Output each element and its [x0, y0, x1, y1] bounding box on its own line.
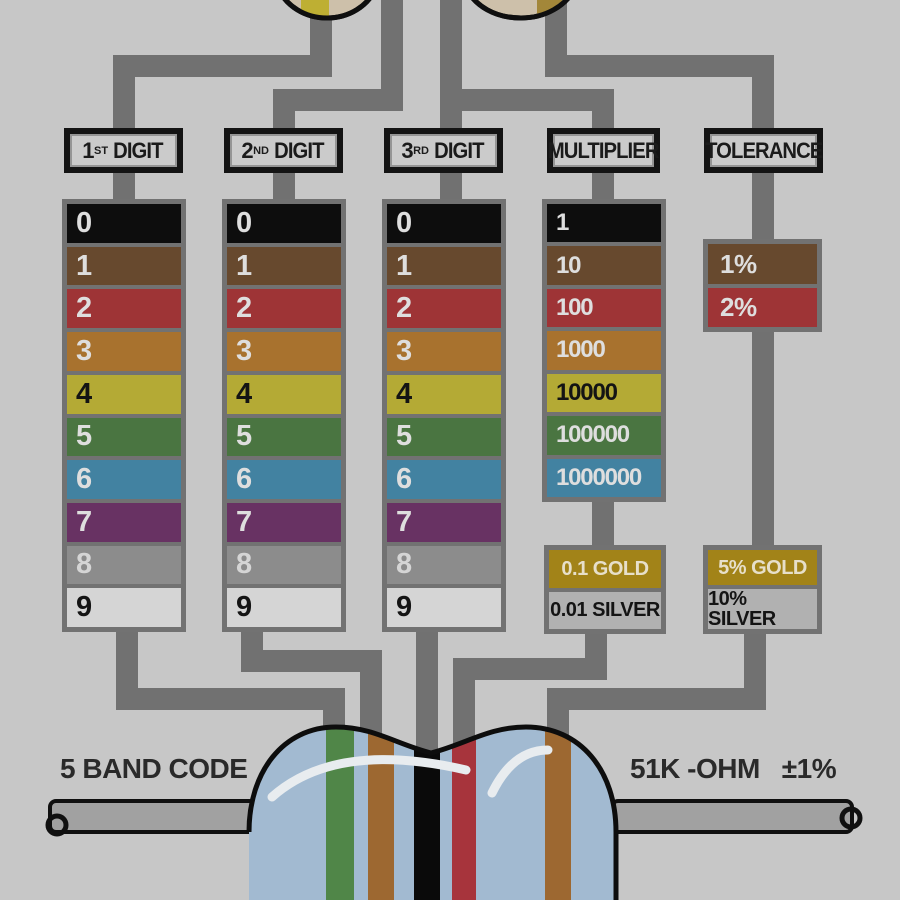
green-row: 5: [227, 418, 341, 457]
gold-row: 5% GOLD: [708, 550, 817, 585]
orange-row: 3: [387, 332, 501, 371]
row-label: 3: [67, 337, 92, 366]
white-row: 9: [227, 588, 341, 627]
header-word: DIGIT: [434, 138, 483, 164]
red-row: 2%: [708, 288, 817, 328]
row-label: 2: [67, 294, 92, 323]
violet-row: 7: [67, 503, 181, 542]
caption-text: 5 BAND CODE: [60, 753, 247, 784]
gray-row: 8: [227, 546, 341, 585]
row-label: 8: [387, 550, 412, 579]
row-label: 1: [547, 211, 568, 235]
header-word: DIGIT: [113, 138, 162, 164]
row-label: 7: [67, 508, 92, 537]
row-label: 9: [387, 593, 412, 622]
row-label: 0: [67, 209, 92, 238]
gray-row: 8: [387, 546, 501, 585]
row-label: 10: [547, 254, 580, 278]
header-3rd-digit: 3RDDIGIT: [384, 128, 503, 173]
white-row: 9: [387, 588, 501, 627]
row-label: 7: [227, 508, 252, 537]
header-number: 3: [401, 138, 413, 164]
black-row: 0: [387, 204, 501, 243]
resistor-value-label: 51K -OHM±1%: [630, 753, 836, 785]
tolerance-table: 1%2%: [703, 239, 822, 332]
tolerance-gold-silver-box: 5% GOLD10% SILVER: [703, 545, 822, 634]
header-ordinal-suffix: ND: [253, 145, 269, 157]
tolerance-value: ±1%: [782, 753, 836, 784]
row-label: 3: [227, 337, 252, 366]
brown-row: 1: [227, 247, 341, 286]
row-label: 9: [227, 593, 252, 622]
row-label: 100: [547, 296, 592, 320]
row-label: 6: [387, 465, 412, 494]
row-label: 6: [67, 465, 92, 494]
brown-row: 1%: [708, 244, 817, 284]
header-number: 2: [241, 138, 253, 164]
row-label: 6: [227, 465, 252, 494]
header-word: TOLERANCE: [705, 138, 822, 164]
row-label: 1: [387, 252, 412, 281]
top-resistor: [278, 0, 575, 22]
header-word: DIGIT: [274, 138, 323, 164]
band-green-5: [326, 720, 354, 900]
row-label: 5% GOLD: [718, 558, 807, 578]
blue-row: 6: [387, 460, 501, 499]
row-label: 0.1 GOLD: [561, 559, 648, 579]
row-label: 10% SILVER: [708, 589, 817, 629]
row-label: 5: [227, 422, 252, 451]
row-label: 1: [227, 252, 252, 281]
digit-table-1st: 0123456789: [62, 199, 186, 632]
red-row: 100: [547, 289, 661, 327]
header-number: 1: [82, 138, 94, 164]
left-lead: [50, 801, 255, 832]
gold-row: 0.1 GOLD: [549, 550, 661, 588]
right-lead: [612, 801, 852, 832]
black-row: 1: [547, 204, 661, 242]
multiplier-gold-silver-box: 0.1 GOLD0.01 SILVER: [544, 545, 666, 634]
row-label: 5: [67, 422, 92, 451]
header-multiplier: MULTIPLIER: [547, 128, 660, 173]
band-brown-1: [368, 720, 394, 900]
row-label: 7: [387, 508, 412, 537]
yellow-row: 4: [387, 375, 501, 414]
green-row: 100000: [547, 416, 661, 454]
violet-row: 7: [227, 503, 341, 542]
digit-table-3rd: 0123456789: [382, 199, 506, 632]
header-ordinal-suffix: ST: [94, 145, 108, 157]
row-label: 4: [387, 380, 412, 409]
header-tolerance: TOLERANCE: [704, 128, 823, 173]
row-label: 10000: [547, 381, 617, 405]
green-row: 5: [387, 418, 501, 457]
row-label: 3: [387, 337, 412, 366]
row-label: 8: [67, 550, 92, 579]
red-row: 2: [227, 289, 341, 328]
yellow-row: 4: [67, 375, 181, 414]
brown-row: 1: [67, 247, 181, 286]
resistance-value: 51K -OHM: [630, 753, 760, 784]
green-row: 5: [67, 418, 181, 457]
row-label: 100000: [547, 423, 629, 447]
brown-row: 10: [547, 246, 661, 284]
row-label: 2: [227, 294, 252, 323]
row-label: 0: [387, 209, 412, 238]
red-row: 2: [67, 289, 181, 328]
row-label: 4: [67, 380, 92, 409]
row-label: 0.01 SILVER: [550, 600, 660, 620]
black-row: 0: [67, 204, 181, 243]
connector-band2-to-2nd-digit: [284, 0, 392, 206]
white-row: 9: [67, 588, 181, 627]
blue-row: 6: [227, 460, 341, 499]
row-label: 5: [387, 422, 412, 451]
row-label: 8: [227, 550, 252, 579]
black-row: 0: [227, 204, 341, 243]
row-label: 9: [67, 593, 92, 622]
header-1st-digit: 1STDIGIT: [64, 128, 183, 173]
row-label: 1000: [547, 338, 605, 362]
five-band-code-caption: 5 BAND CODE: [60, 753, 247, 785]
row-label: 1%: [708, 251, 757, 277]
row-label: 0: [227, 209, 252, 238]
row-label: 2%: [708, 294, 757, 320]
silver-row: 0.01 SILVER: [549, 592, 661, 630]
resistor-color-code-chart: 1STDIGIT 2NDDIGIT 3RDDIGIT MULTIPLIER TO…: [0, 0, 900, 900]
orange-row: 3: [67, 332, 181, 371]
orange-row: 1000: [547, 331, 661, 369]
digit-table-2nd: 0123456789: [222, 199, 346, 632]
blue-row: 6: [67, 460, 181, 499]
row-label: 1000000: [547, 466, 641, 490]
row-label: 2: [387, 294, 412, 323]
yellow-row: 10000: [547, 374, 661, 412]
brown-row: 1: [387, 247, 501, 286]
yellow-row: 4: [227, 375, 341, 414]
multiplier-table: 1101001000100001000001000000: [542, 199, 666, 502]
row-label: 1: [67, 252, 92, 281]
gray-row: 8: [67, 546, 181, 585]
red-row: 2: [387, 289, 501, 328]
orange-row: 3: [227, 332, 341, 371]
header-word: MULTIPLIER: [548, 138, 659, 164]
row-label: 4: [227, 380, 252, 409]
silver-row: 10% SILVER: [708, 589, 817, 629]
header-ordinal-suffix: RD: [413, 145, 429, 157]
blue-row: 1000000: [547, 459, 661, 497]
violet-row: 7: [387, 503, 501, 542]
header-2nd-digit: 2NDDIGIT: [224, 128, 343, 173]
